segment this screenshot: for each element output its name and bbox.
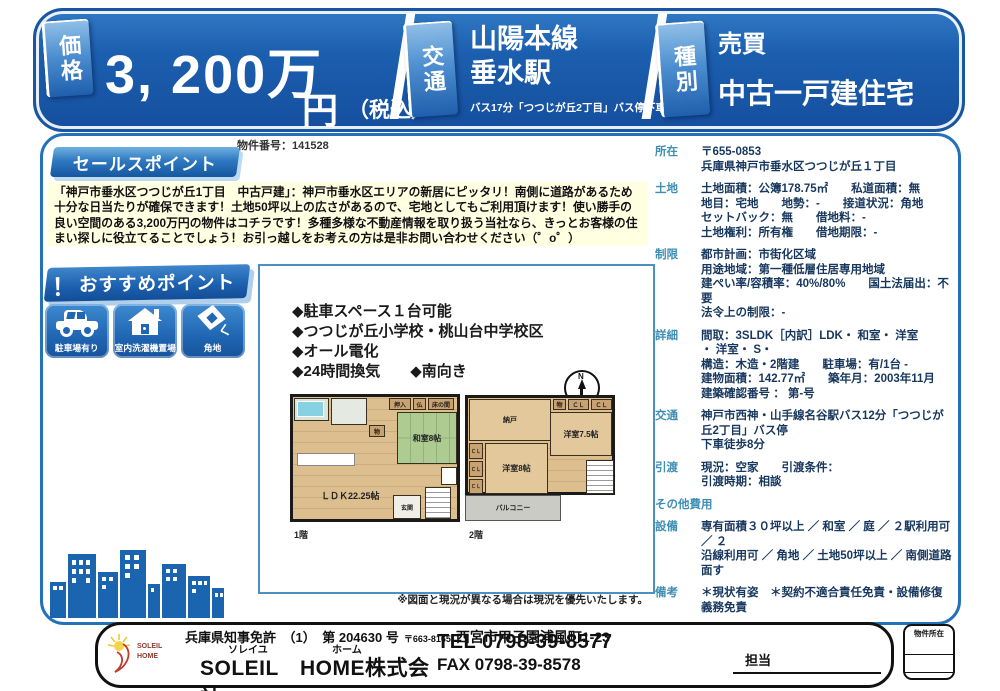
detail-row-location: 所在 〒655-0853 兵庫県神戸市垂水区つつじが丘１丁目 — [655, 145, 953, 174]
detail-label: 交通 — [655, 409, 701, 453]
type-tab-label: 種別 — [666, 44, 701, 96]
recommend-title: おすすめポイント — [79, 268, 236, 297]
location-box-title: 物件所在 — [905, 626, 953, 639]
company-name: SOLEIL HOME株式会社 — [200, 652, 440, 691]
detail-value: 都市計画：市街化区域 用途地域：第一種低層住居専用地域 建ぺい率/容積率：40%… — [701, 248, 953, 321]
detail-value — [713, 498, 954, 513]
closet: ＣＬ — [469, 479, 483, 494]
staff-label: 担当 — [745, 653, 771, 668]
toilet — [441, 467, 457, 485]
detail-row-handover: 引渡 現況：空家 引渡条件： 引渡時期：相談 — [655, 461, 953, 490]
detail-label: 土地 — [655, 182, 701, 240]
floorplan-2f: 納戸 物 ＣＬ ＣＬ 洋室7.5帖 ＣＬ ＣＬ ＣＬ 洋室8帖 — [465, 395, 615, 495]
detail-value: 神戸市西神・山手線名谷駅バス12分「つつじが丘2丁目」バス停 下車徒歩8分 — [701, 409, 953, 453]
detail-value: 現況：空家 引渡条件： 引渡時期：相談 — [701, 461, 953, 490]
exclamation-icon: ！ — [51, 267, 76, 302]
feature-line: ◆駐車スペース１台可能 — [292, 302, 452, 322]
company-furigana: ソレイユ ホーム — [200, 641, 440, 652]
detail-row-building: 詳細 間取：3SLDK［内訳］LDK・ 和室・ 洋室 ・ 洋室・ S・ 構造：木… — [655, 329, 953, 402]
detail-value: 〒655-0853 兵庫県神戸市垂水区つつじが丘１丁目 — [701, 145, 953, 174]
storage: 物 — [553, 399, 566, 410]
fax-number: FAX 0798-39-8578 — [437, 655, 613, 675]
detail-row-remarks: 備考 ＊現状有姿 ＊契約不適合責任免責・設備修復義務免責 — [655, 586, 953, 615]
company-logo: SOLEIL HOME — [103, 632, 195, 681]
type-tab: 種別 — [655, 20, 710, 117]
sale-type: 売買 — [718, 24, 766, 59]
property-details: 所在 〒655-0853 兵庫県神戸市垂水区つつじが丘１丁目 土地 土地面積：公… — [655, 145, 953, 623]
floorplan-disclaimer: ※図面と現況が異なる場合は現況を優先いたします。 — [348, 592, 648, 607]
badge-laundry-label: 室内洗濯機置場 — [114, 341, 175, 358]
detail-row-other-costs: その他費用 — [655, 498, 953, 513]
badge-indoor-laundry: 室内洗濯機置場 — [113, 304, 177, 358]
transport-line2: 垂水駅 — [470, 56, 551, 90]
contact-block: TEL 0798-39-8577 FAX 0798-39-8578 — [437, 631, 613, 675]
furigana-soleil: ソレイユ — [228, 641, 268, 656]
house-icon — [113, 304, 177, 340]
detail-value: 土地面積：公簿178.75㎡ 私道面積：無 地目：宅地 地勢：- 接道状況：角地… — [701, 182, 953, 240]
closet-oshiire: 押入 — [389, 398, 411, 410]
svg-text:SOLEIL: SOLEIL — [137, 643, 163, 650]
closet: ＣＬ — [469, 443, 483, 459]
detail-label: 所在 — [655, 145, 701, 174]
closet: ＣＬ — [568, 399, 589, 410]
floor2-label: 2階 — [469, 528, 483, 541]
floorplan-1f: 押入 仏 床の間 和室8帖 物 ＬＤＫ22.25帖 玄関 — [290, 394, 460, 522]
feature-line: ◆24時間換気 ◆南向き — [292, 362, 467, 382]
bathtub — [297, 401, 324, 417]
detail-label: 設備 — [655, 520, 701, 578]
feature-line: ◆オール電化 — [292, 342, 379, 362]
company-name-block: ソレイユ ホーム SOLEIL HOME株式会社 — [200, 641, 440, 691]
detail-label: その他費用 — [655, 498, 713, 513]
badge-corner-label: 角地 — [204, 341, 221, 358]
floor1-label: 1階 — [294, 528, 308, 541]
detail-label: 詳細 — [655, 329, 701, 402]
recommend-header: ！ おすすめポイント — [44, 264, 251, 302]
detail-label: 制限 — [655, 248, 701, 321]
detail-value: 専有面積３０坪以上 ／ 和室 ／ 庭 ／ ２駅利用可 ／ ２ 沿線利用可 ／ 角… — [701, 520, 953, 578]
feature-line: ◆つつじが丘小学校・桃山台中学校区 — [292, 322, 544, 342]
price-unit: 円 — [302, 82, 338, 134]
property-type: 中古一戸建住宅 — [718, 72, 914, 112]
badge-parking-label: 駐車場有り — [55, 341, 99, 358]
detail-value: 間取：3SLDK［内訳］LDK・ 和室・ 洋室 ・ 洋室・ S・ 構造：木造・2… — [701, 329, 953, 402]
detail-label: 引渡 — [655, 461, 701, 490]
floorplan-panel: ◆駐車スペース１台可能 ◆つつじが丘小学校・桃山台中学校区 ◆オール電化 ◆24… — [258, 264, 655, 594]
washroom — [331, 398, 367, 425]
closet: ＣＬ — [591, 399, 612, 410]
price-tab-label: 価格 — [51, 33, 86, 85]
storage: 物 — [369, 425, 385, 437]
furigana-home: ホーム — [332, 641, 362, 656]
price-tab: 価格 — [41, 18, 93, 97]
stairs-2f — [586, 460, 614, 494]
transport-line1: 山陽本線 — [470, 22, 578, 56]
kitchen-counter — [297, 453, 355, 466]
japanese-room: 和室8帖 — [397, 412, 457, 464]
tel-label: TEL — [437, 631, 482, 653]
detail-row-land: 土地 土地面積：公簿178.75㎡ 私道面積：無 地目：宅地 地勢：- 接道状況… — [655, 182, 953, 240]
western-room-8: 洋室8帖 — [485, 443, 548, 494]
balcony: バルコニー — [465, 495, 561, 521]
detail-row-restrictions: 制限 都市計画：市街化区域 用途地域：第一種低層住居専用地域 建ぺい率/容積率：… — [655, 248, 953, 321]
ldk-room-label: ＬＤＫ22.25帖 — [321, 489, 380, 502]
detail-row-equipment: 設備 専有面積３０坪以上 ／ 和室 ／ 庭 ／ ２駅利用可 ／ ２ 沿線利用可 … — [655, 520, 953, 578]
location-box-line — [905, 639, 953, 655]
price-value: 3, 200万 — [105, 30, 323, 109]
corner-lot-icon: く — [181, 304, 245, 340]
closet: ＣＬ — [469, 461, 483, 477]
stairs-1f — [425, 487, 451, 519]
tokonoma: 床の間 — [428, 398, 454, 410]
fax-label: FAX — [437, 655, 475, 674]
sales-point-header: セールスポイント — [50, 147, 240, 177]
transport-tab-label: 交通 — [414, 44, 449, 96]
property-number: 物件番号：141528 — [237, 137, 329, 153]
detail-value: ＊現状有姿 ＊契約不適合責任免責・設備修復義務免責 — [701, 586, 953, 615]
tel-number: TEL 0798-39-8577 — [437, 631, 613, 654]
butsudan: 仏 — [413, 398, 426, 410]
location-box-line — [905, 655, 953, 673]
tel-value: 0798-39-8577 — [482, 631, 613, 653]
transport-tab: 交通 — [403, 20, 458, 117]
detail-row-transport: 交通 神戸市西神・山手線名谷駅バス12分「つつじが丘2丁目」バス停 下車徒歩8分 — [655, 409, 953, 453]
property-location-stamp-box: 物件所在 — [903, 624, 955, 680]
car-icon — [45, 304, 109, 340]
bathroom — [294, 398, 329, 421]
staff-signature-line: 担当 — [733, 650, 881, 674]
western-room-7-5: 洋室7.5帖 — [550, 412, 612, 456]
badge-corner-lot: く 角地 — [181, 304, 245, 358]
flyer-page: 価格 3, 200万 円 （税込） 交通 山陽本線 垂水駅 バス17分「つつじが… — [0, 0, 1000, 691]
sales-point-body: 「神戸市垂水区つつじが丘1丁目 中古戸建」：神戸市垂水区エリアの新居にピッタリ！… — [47, 182, 648, 246]
fax-value: 0798-39-8578 — [475, 655, 581, 674]
sales-point-title: セールスポイント — [73, 150, 217, 175]
badge-parking: 駐車場有り — [45, 304, 109, 358]
svg-text:HOME: HOME — [137, 653, 158, 660]
detail-label: 備考 — [655, 586, 701, 615]
city-skyline-graphic — [48, 538, 243, 623]
storage-room: 納戸 — [469, 399, 551, 441]
entrance: 玄関 — [393, 495, 421, 519]
